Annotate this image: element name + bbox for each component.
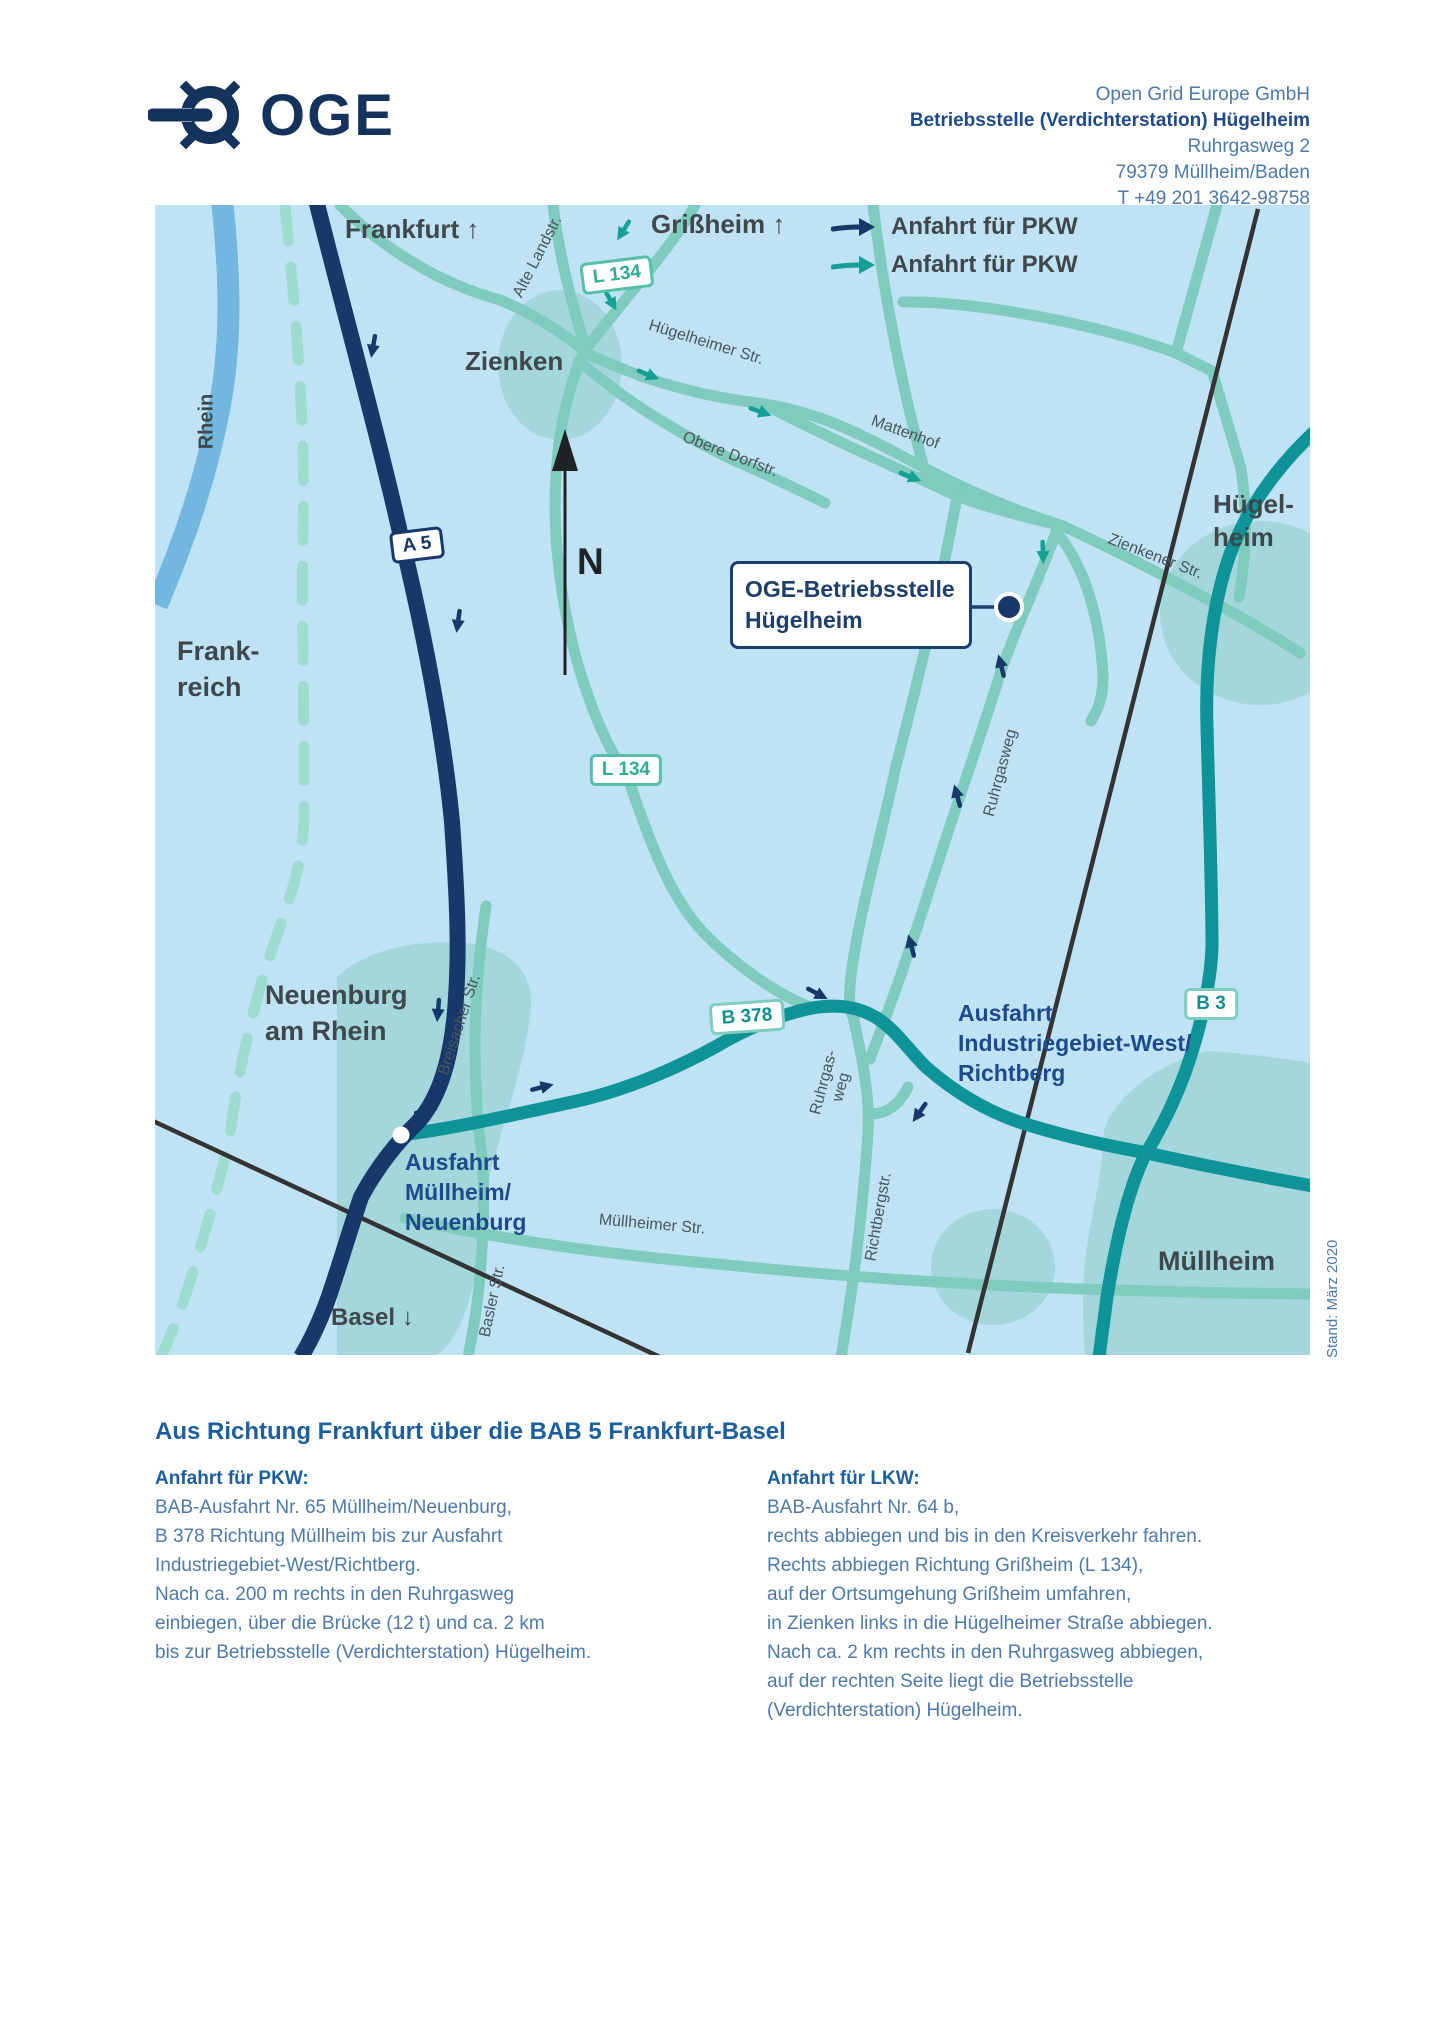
label-frankfurt: Frankfurt ↑ — [345, 213, 479, 246]
legend-pkw-label: Anfahrt für PKW — [891, 213, 1078, 241]
lkw-line: Rechts abbiegen Richtung Grißheim (L 134… — [767, 1551, 1367, 1580]
label-grissheim: Grißheim ↑ — [651, 208, 785, 241]
legend-lkw-arrow-icon — [831, 252, 877, 279]
address-block: Open Grid Europe GmbH Betriebsstelle (Ve… — [910, 82, 1310, 212]
site-map: Anfahrt für PKW Anfahrt für PKW Frankfur… — [155, 205, 1310, 1355]
muellheim-west-area — [931, 1209, 1055, 1325]
road-exit-ramp — [870, 1087, 908, 1114]
badge-b3: B 3 — [1184, 988, 1238, 1020]
label-huegelheim: Hügel- heim — [1213, 488, 1294, 554]
railway-lines — [155, 209, 1258, 1355]
label-rhein: Rhein — [190, 394, 223, 450]
lkw-line: BAB-Ausfahrt Nr. 64 b, — [767, 1493, 1367, 1522]
label-zienken: Zienken — [465, 345, 563, 378]
pkw-line: BAB-Ausfahrt Nr. 65 Müllheim/Neuenburg, — [155, 1493, 715, 1522]
brand-name: OGE — [260, 82, 395, 149]
oge-logo-icon — [148, 78, 246, 152]
lkw-line: rechts abbiegen und bis in den Kreisverk… — [767, 1522, 1367, 1551]
directions-lkw-column: Anfahrt für LKW: BAB-Ausfahrt Nr. 64 b, … — [767, 1464, 1367, 1725]
route-arrow-icon — [450, 610, 466, 634]
route-arrow-icon — [612, 218, 635, 244]
oge-logo: OGE — [148, 78, 395, 152]
a5-exit-dot — [393, 1127, 410, 1144]
oge-site-callout: OGE-Betriebsstelle Hügelheim — [730, 561, 972, 649]
route-arrow-icon — [907, 1100, 930, 1125]
label-basel: Basel ↓ — [331, 1301, 414, 1334]
pkw-line: Nach ca. 200 m rechts in den Ruhrgasweg — [155, 1580, 715, 1609]
label-ausfahrt-muellheim: Ausfahrt Müllheim/ Neuenburg — [405, 1147, 526, 1237]
pkw-line: bis zur Betriebsstelle (Verdichterstatio… — [155, 1638, 715, 1667]
pkw-title: Anfahrt für PKW: — [155, 1464, 715, 1493]
lkw-line: (Verdichterstation) Hügelheim. — [767, 1696, 1367, 1725]
map-graphics — [155, 205, 1310, 1355]
directions-pkw-column: Anfahrt für PKW: BAB-Ausfahrt Nr. 65 Mül… — [155, 1464, 715, 1667]
address-company: Open Grid Europe GmbH — [910, 82, 1310, 108]
badge-b378: B 378 — [709, 998, 786, 1035]
callout-line1: OGE-Betriebsstelle — [745, 574, 957, 605]
lkw-line: auf der rechten Seite liegt die Betriebs… — [767, 1667, 1367, 1696]
legend-row-pkw: Anfahrt für PKW — [831, 213, 1078, 241]
label-neuenburg: Neuenburg am Rhein — [265, 977, 408, 1049]
label-muellheim: Müllheim — [1158, 1245, 1275, 1278]
pkw-line: einbiegen, über die Brücke (12 t) und ca… — [155, 1609, 715, 1638]
route-arrow-icon — [531, 1078, 555, 1096]
road-branch-east — [1056, 532, 1103, 721]
badge-a5: A 5 — [389, 526, 445, 564]
pkw-line: B 378 Richtung Müllheim bis zur Ausfahrt — [155, 1522, 715, 1551]
compass-n-label: N — [577, 541, 604, 583]
route-arrow-icon — [365, 335, 382, 359]
lkw-title: Anfahrt für LKW: — [767, 1464, 1367, 1493]
pkw-line: Industriegebiet-West/Richtberg. — [155, 1551, 715, 1580]
badge-l134-south: L 134 — [590, 754, 662, 786]
address-site: Betriebsstelle (Verdichterstation) Hügel… — [910, 108, 1310, 134]
lkw-line: Nach ca. 2 km rechts in den Ruhrgasweg a… — [767, 1638, 1367, 1667]
oge-site-marker — [996, 594, 1022, 620]
lkw-line: auf der Ortsumgehung Grißheim umfahren, — [767, 1580, 1367, 1609]
address-city: 79379 Müllheim/Baden — [910, 160, 1310, 186]
address-street: Ruhrgasweg 2 — [910, 134, 1310, 160]
legend-pkw-arrow-icon — [831, 214, 877, 241]
callout-line2: Hügelheim — [745, 605, 957, 636]
legend-lkw-label: Anfahrt für PKW — [891, 251, 1078, 279]
label-ausfahrt-industriegebiet: Ausfahrt Industriegebiet-West/ Richtberg — [958, 998, 1191, 1088]
lkw-line: in Zienken links in die Hügelheimer Stra… — [767, 1609, 1367, 1638]
anfahrtsskizze-page: OGE Open Grid Europe GmbH Betriebsstelle… — [0, 0, 1440, 2038]
label-frankreich: Frank- reich — [177, 633, 260, 705]
muellheim-area — [1083, 1051, 1310, 1355]
map-revision-note: Stand: März 2020 — [1324, 1212, 1341, 1358]
directions-heading: Aus Richtung Frankfurt über die BAB 5 Fr… — [155, 1418, 786, 1446]
legend-row-lkw: Anfahrt für PKW — [831, 251, 1078, 279]
road-grid-3 — [903, 302, 1176, 353]
